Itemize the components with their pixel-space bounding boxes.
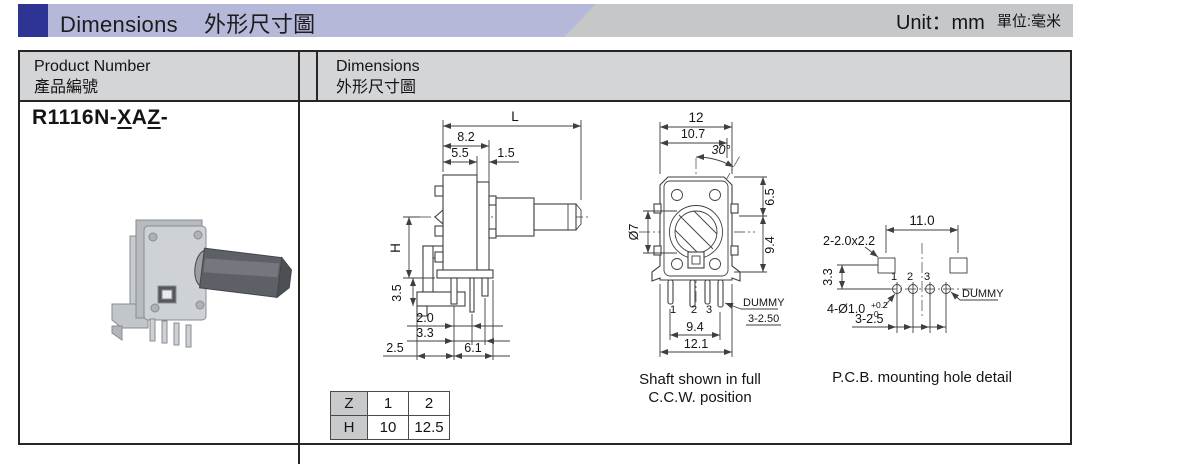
caption-shaft-line2: C.C.W. position (648, 389, 751, 406)
dim-slots: 2-2.0x2.2 (823, 234, 875, 248)
dim-30deg: 30° (712, 143, 731, 157)
col-header-dimensions: Dimensions 外形尺寸圖 (318, 52, 1070, 100)
pin-label-3: 3 (706, 304, 712, 316)
photo-shaft-group (193, 247, 293, 298)
dim-3-2-5: 3-2.5 (855, 312, 884, 326)
datasheet-page: Dimensions外形尺寸圖 Unit：mm 單位:毫米 Product Nu… (0, 0, 1188, 464)
section-title-en: Dimensions (60, 12, 178, 37)
pn-prefix: R1116N- (32, 106, 117, 129)
pcb-dummy-label: DUMMY (962, 288, 1004, 300)
product-photo (92, 198, 302, 363)
pn-suffix: - (161, 106, 169, 129)
dim-9-4-side: 9.4 (763, 236, 777, 253)
side-body-outline (417, 175, 581, 316)
pn-code-z: Z (147, 106, 160, 129)
product-number: R1116N-XAZ- (32, 106, 168, 130)
zh-table-row-z: Z 1 2 (331, 392, 450, 416)
unit-label-en: Unit：mm (896, 6, 985, 35)
col-header-dimensions-en: Dimensions (336, 56, 1070, 77)
dim-5-5: 5.5 (451, 146, 468, 160)
dim-3-3: 3.3 (416, 326, 433, 340)
dummy-label: DUMMY (743, 297, 785, 309)
section-title-zh: 外形尺寸圖 (204, 12, 316, 37)
front-caption: Shaft shown in full C.C.W. position (639, 371, 761, 406)
dim-6-5: 6.5 (763, 188, 777, 205)
zh-row-z-header: Z (331, 392, 368, 416)
zh-row-z-val1: 1 (368, 392, 409, 416)
pn-code-x: X (117, 106, 132, 129)
zh-row-h-header: H (331, 416, 368, 440)
pin-label-2: 2 (691, 304, 697, 316)
pcb-dimension-labels: 11.0 2-2.0x2.2 3.3 1 2 3 4-Ø1.0 +0.2 -0 … (821, 213, 1012, 386)
unit-label-zh: 單位:毫米 (997, 10, 1061, 31)
dim-2-5: 2.5 (386, 341, 403, 355)
pcb-hole-detail-drawing: 11.0 2-2.0x2.2 3.3 1 2 3 4-Ø1.0 +0.2 -0 … (815, 205, 1065, 390)
dim-dia7: Ø7 (627, 224, 641, 241)
unit-label: Unit：mm 單位:毫米 (896, 4, 1061, 37)
col-header-product-number-en: Product Number (34, 56, 316, 77)
zh-table-row-h: H 10 12.5 (331, 416, 450, 440)
zh-row-z-val2: 2 (409, 392, 450, 416)
caption-shaft-line1: Shaft shown in full (639, 371, 761, 388)
caption-pcb: P.C.B. mounting hole detail (832, 369, 1012, 386)
col-header-product-number-zh: 產品編號 (34, 77, 316, 98)
accent-square-icon (18, 4, 48, 37)
zh-selection-table: Z 1 2 H 10 12.5 (330, 391, 450, 440)
dim-3-5: 3.5 (390, 284, 404, 301)
dim-3-2-50: 3-2.50 (748, 313, 779, 325)
dim-12-1: 12.1 (684, 337, 708, 351)
pn-code-a: A (132, 106, 148, 129)
side-view-drawing: L 8.2 5.5 1.5 H 3.5 2.0 3.3 2.5 6.1 (325, 100, 625, 370)
dim-H: H (388, 243, 403, 253)
section-header-bar: Dimensions外形尺寸圖 Unit：mm 單位:毫米 (18, 4, 1073, 37)
pin-label-1: 1 (670, 304, 676, 316)
dim-2-0: 2.0 (416, 311, 433, 325)
photo-pins-group (150, 319, 191, 347)
pcb-pin-label-3: 3 (924, 271, 930, 283)
zh-row-h-val1: 10 (368, 416, 409, 440)
zh-row-h-val2: 12.5 (409, 416, 450, 440)
dim-1-5: 1.5 (497, 146, 514, 160)
pcb-pin-label-1: 1 (891, 271, 897, 283)
col-header-product-number: Product Number 產品編號 (20, 52, 318, 100)
photo-body-group (112, 220, 206, 340)
front-view-drawing: 12 10.7 30° Ø7 6.5 9.4 1 2 3 DUMMY 3-2.5… (615, 100, 825, 410)
dim-L: L (511, 109, 519, 124)
col-header-dimensions-zh: 外形尺寸圖 (336, 77, 1070, 98)
dim-12: 12 (688, 110, 703, 125)
dim-8-2: 8.2 (457, 130, 474, 144)
dim-10-7: 10.7 (681, 127, 705, 141)
dim-6-1: 6.1 (464, 341, 481, 355)
table-header-row: Product Number 產品編號 Dimensions 外形尺寸圖 (20, 52, 1070, 102)
dim-3-3-pcb: 3.3 (821, 268, 835, 285)
dim-11-0: 11.0 (909, 213, 934, 228)
section-title: Dimensions外形尺寸圖 (60, 7, 315, 39)
dim-9-4-bottom: 9.4 (686, 320, 703, 334)
pcb-pin-label-2: 2 (907, 271, 913, 283)
